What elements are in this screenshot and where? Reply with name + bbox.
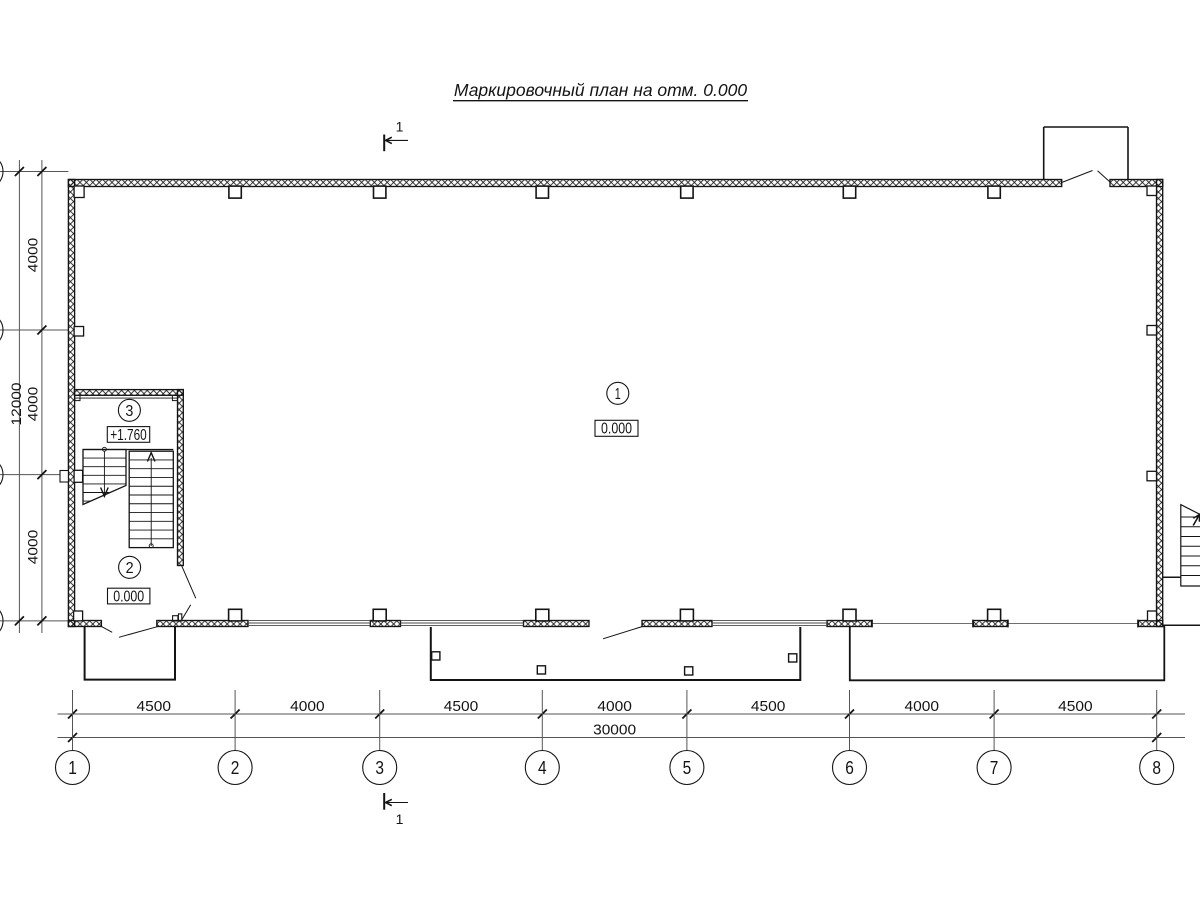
svg-text:4500: 4500 [751,699,786,715]
svg-text:1: 1 [396,119,404,135]
svg-text:3: 3 [125,403,133,420]
svg-text:4000: 4000 [290,699,325,715]
svg-text:4000: 4000 [905,699,940,715]
svg-text:3: 3 [375,758,384,778]
svg-text:8: 8 [1152,758,1161,778]
svg-text:1: 1 [68,758,77,778]
svg-text:7: 7 [990,758,999,778]
svg-text:4500: 4500 [1058,699,1093,715]
svg-text:30000: 30000 [593,722,636,738]
svg-text:4000: 4000 [25,530,41,565]
svg-text:4000: 4000 [25,387,41,422]
svg-text:6: 6 [845,758,854,778]
svg-text:+1.760: +1.760 [110,427,147,444]
svg-text:4500: 4500 [137,699,172,715]
svg-text:4000: 4000 [597,699,632,715]
svg-text:2: 2 [231,758,240,778]
svg-text:4500: 4500 [444,699,479,715]
svg-text:4000: 4000 [25,238,41,273]
svg-text:0.000: 0.000 [601,421,632,438]
svg-text:1: 1 [615,386,621,403]
svg-text:12000: 12000 [8,382,24,425]
svg-text:0.000: 0.000 [113,589,144,606]
svg-text:1: 1 [396,811,404,827]
svg-text:4: 4 [538,758,547,778]
svg-text:2: 2 [126,560,134,577]
svg-text:5: 5 [683,758,692,778]
svg-text:Маркировочный план на отм. 0.0: Маркировочный план на отм. 0.000 [454,80,747,100]
